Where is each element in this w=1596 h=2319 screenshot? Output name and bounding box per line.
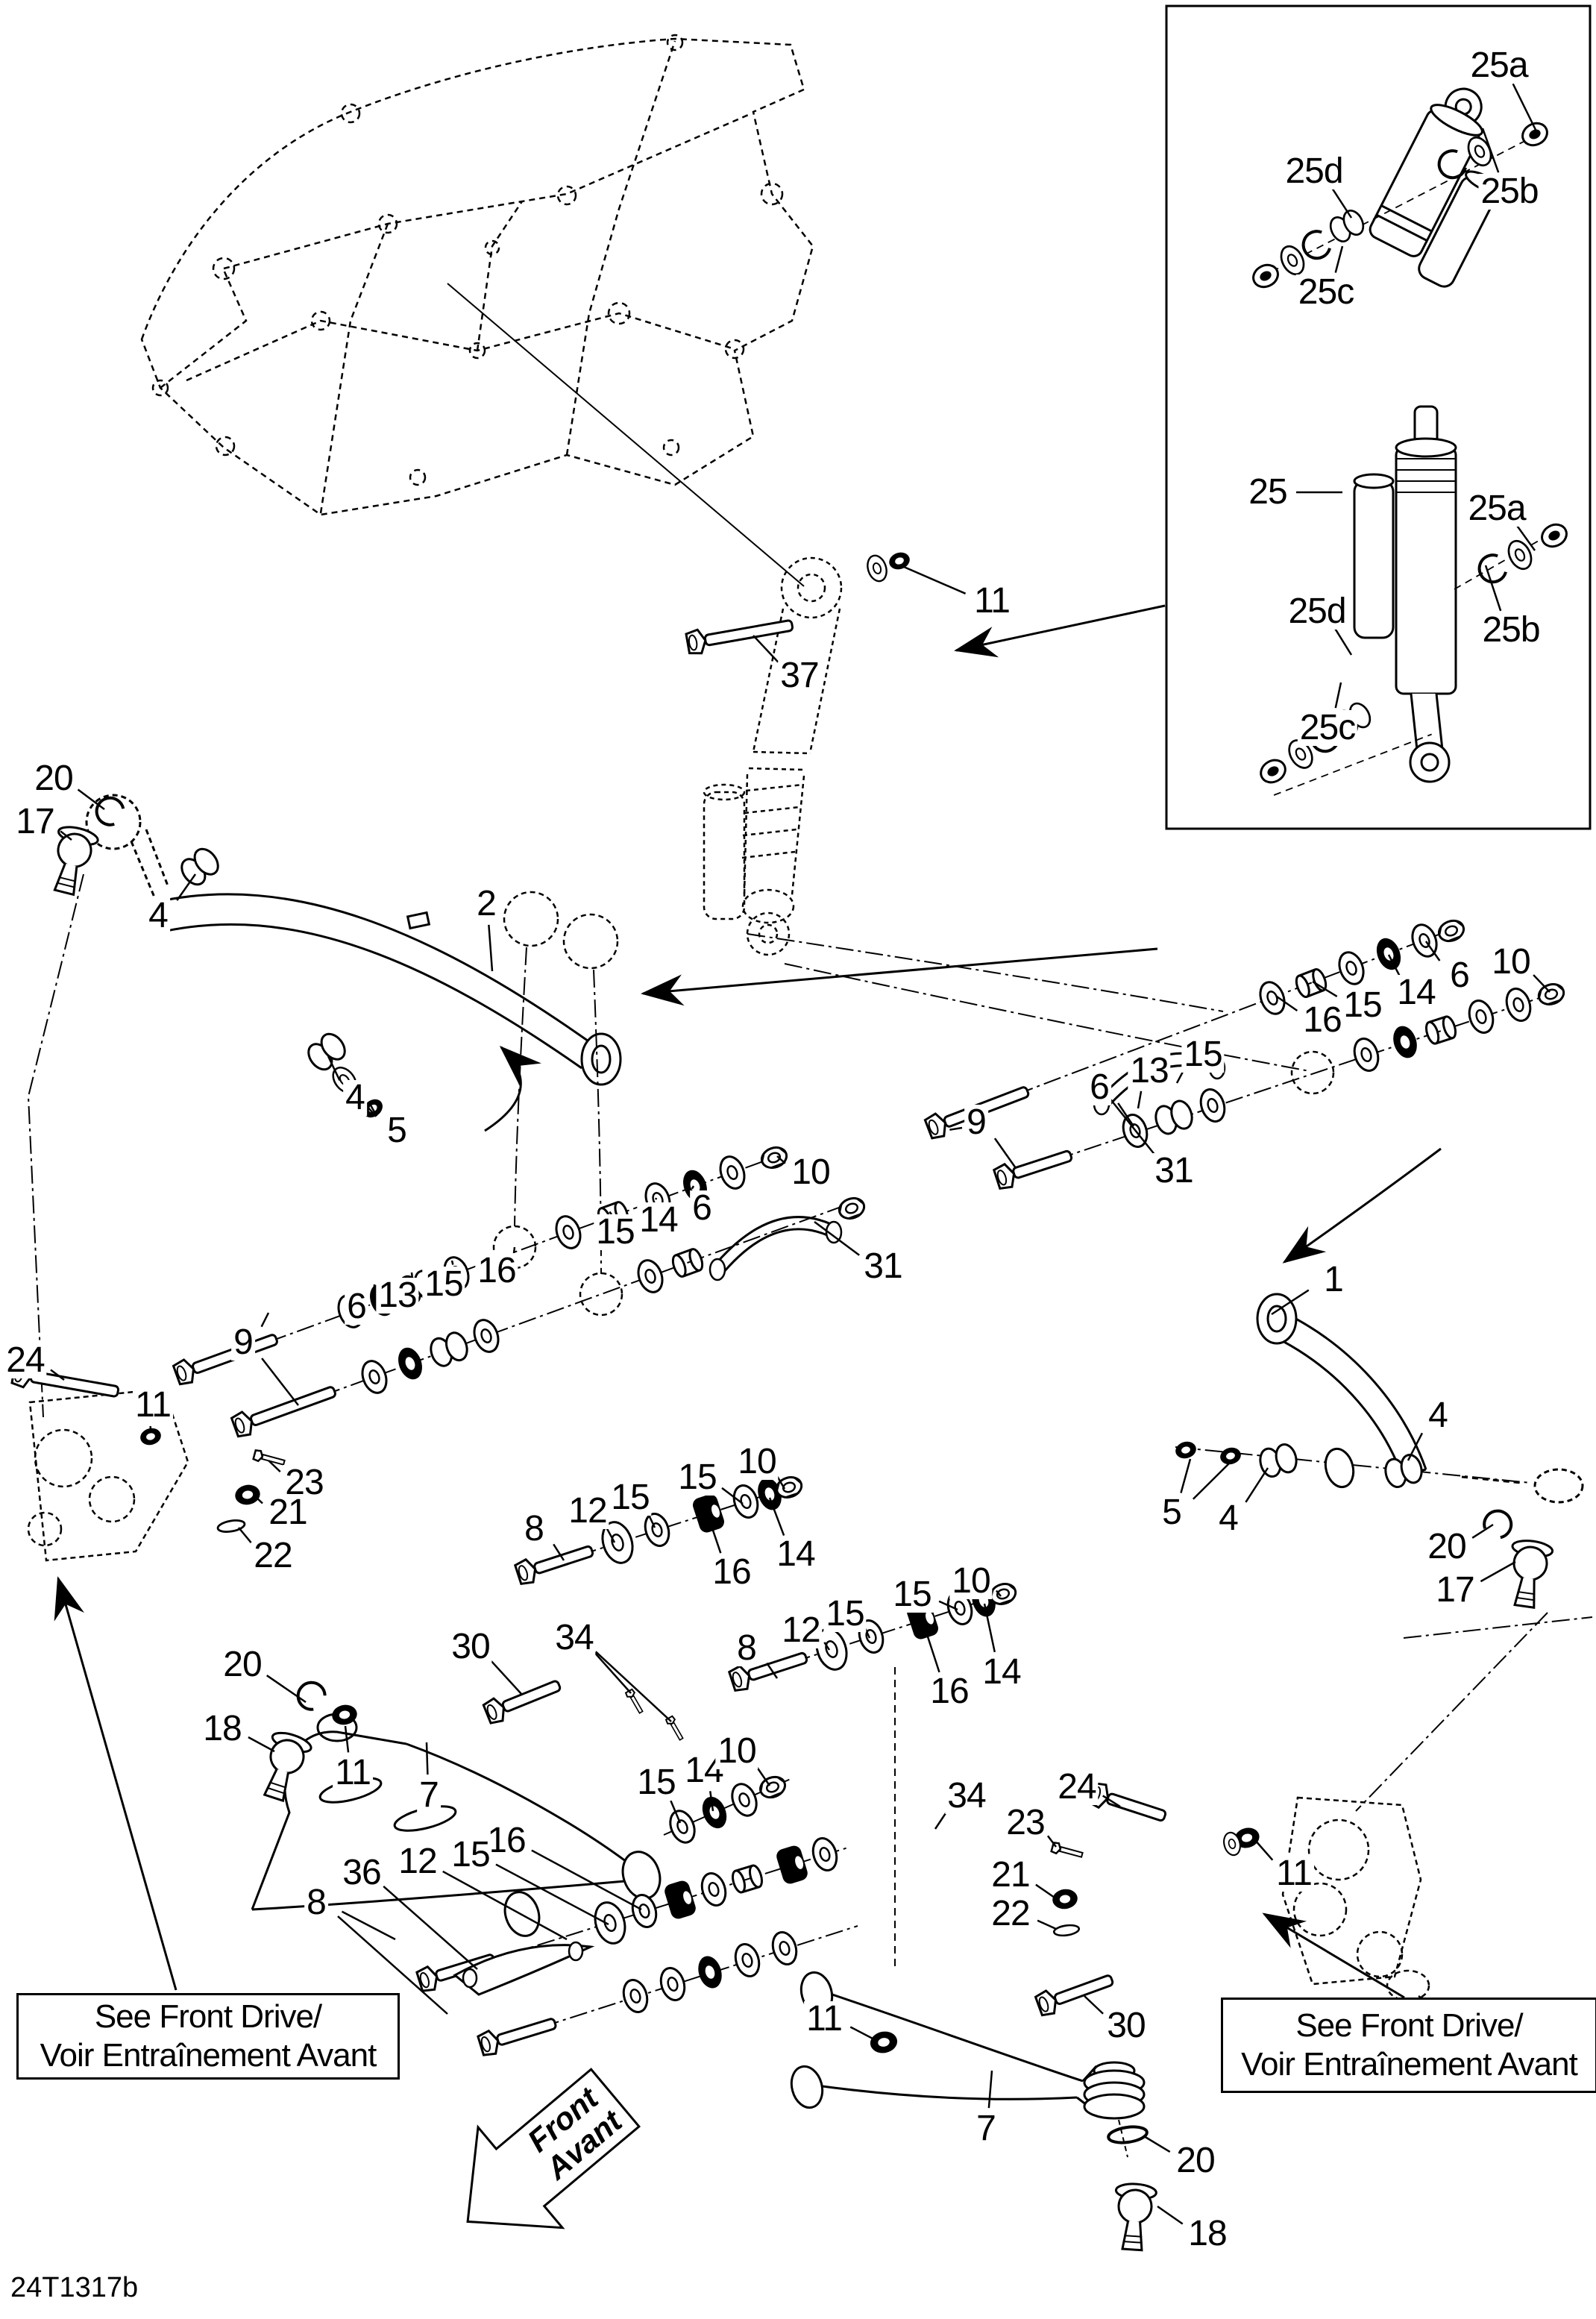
leader-line xyxy=(767,1663,777,1678)
leader-line xyxy=(1335,628,1351,655)
leader-line xyxy=(1084,1996,1103,2014)
leader-line xyxy=(60,831,72,840)
note-box-right-line1: See Front Drive/ xyxy=(1295,2006,1522,2045)
leader-line xyxy=(865,1628,870,1638)
leader-line xyxy=(262,1313,268,1327)
leader-line xyxy=(342,1912,395,1939)
leader-line xyxy=(1336,246,1342,273)
note-box-left-line2: Voir Entraînement Avant xyxy=(40,2036,377,2075)
leader-line xyxy=(996,1591,1001,1596)
leader-line xyxy=(488,925,492,971)
leader-line xyxy=(777,1477,785,1489)
leader-line xyxy=(268,1460,280,1472)
leader-line xyxy=(1513,84,1538,134)
leader-line xyxy=(177,874,195,900)
leader-line xyxy=(383,1886,477,1969)
callout-leader-layer xyxy=(0,0,1596,2319)
leader-line xyxy=(1426,941,1439,961)
leader-line xyxy=(496,1865,609,1924)
leader-line xyxy=(255,1496,263,1503)
note-box-right: See Front Drive/ Voir Entraînement Avant xyxy=(1221,1998,1596,2093)
leader-line xyxy=(1486,565,1501,611)
leader-line xyxy=(1480,1562,1515,1581)
leader-line xyxy=(267,1675,306,1702)
leader-line xyxy=(923,1623,939,1672)
note-box-left: See Front Drive/ Voir Entraînement Avant xyxy=(16,1993,400,2080)
leader-line xyxy=(1048,1836,1056,1847)
leader-line xyxy=(553,1544,564,1560)
leader-line xyxy=(1408,1433,1422,1460)
leader-line xyxy=(532,1851,641,1910)
leader-line xyxy=(939,1601,958,1610)
leader-line xyxy=(824,1642,829,1650)
leader-line xyxy=(1533,975,1550,992)
leader-line xyxy=(753,636,778,662)
leader-line xyxy=(935,1811,947,1829)
leader-line xyxy=(1254,1839,1272,1860)
leader-line xyxy=(1313,982,1337,997)
leader-line xyxy=(814,1222,859,1255)
leader-line xyxy=(51,1370,64,1380)
leader-line xyxy=(648,1514,655,1528)
leader-line xyxy=(770,1498,784,1536)
leader-line xyxy=(1037,1921,1056,1929)
leader-line xyxy=(1272,1290,1309,1314)
leader-line xyxy=(850,2027,874,2039)
leader-line xyxy=(248,1737,274,1751)
leader-line xyxy=(1138,1091,1141,1108)
leader-line xyxy=(984,1604,995,1652)
leader-line xyxy=(1118,1103,1134,1126)
leader-line xyxy=(1336,682,1341,708)
leader-line xyxy=(1245,1468,1268,1502)
leader-line xyxy=(1277,997,1297,1011)
leader-line xyxy=(606,1527,615,1543)
leader-line xyxy=(670,1801,680,1823)
leader-line xyxy=(692,1186,694,1189)
leader-line xyxy=(348,1085,376,1117)
leader-line xyxy=(989,2071,992,2108)
leader-line xyxy=(1036,1885,1055,1898)
leader-line xyxy=(239,1528,251,1543)
leader-line xyxy=(443,1871,567,1939)
leader-line xyxy=(1181,1459,1190,1493)
leader-line xyxy=(756,1766,770,1786)
leader-line xyxy=(596,1651,671,1722)
leader-line xyxy=(427,1742,427,1774)
leader-line xyxy=(345,1726,348,1752)
leader-line xyxy=(594,1653,631,1693)
note-box-right-line2: Voir Entraînement Avant xyxy=(1241,2045,1577,2084)
leader-line xyxy=(1144,2136,1170,2152)
leader-line xyxy=(777,1156,785,1164)
leader-line xyxy=(412,1273,412,1278)
leader-line xyxy=(1157,2206,1183,2224)
leader-line xyxy=(1102,1089,1155,1155)
leader-line xyxy=(1103,1795,1120,1807)
leader-line xyxy=(722,1488,743,1504)
leader-line xyxy=(328,1056,339,1080)
leader-line xyxy=(1516,524,1535,550)
leader-line xyxy=(1332,188,1351,218)
leader-line xyxy=(491,1661,522,1695)
leader-line xyxy=(78,789,104,809)
diagram-code: 24T1317b xyxy=(10,2272,138,2304)
leader-line xyxy=(1389,955,1400,976)
leader-line xyxy=(1483,128,1498,172)
leader-line xyxy=(1193,1463,1229,1499)
leader-line xyxy=(452,1261,453,1265)
leader-line xyxy=(904,567,966,594)
leader-line xyxy=(262,1358,298,1405)
leader-line xyxy=(656,1198,656,1199)
note-box-left-line1: See Front Drive/ xyxy=(95,1998,321,2036)
leader-line xyxy=(1177,1070,1184,1083)
leader-line xyxy=(609,1212,612,1214)
diagram-stage: 25a25b25d25c2525a25b25d25c37112017424510… xyxy=(0,0,1596,2319)
leader-line xyxy=(710,1791,713,1811)
leader-line xyxy=(709,1517,720,1553)
leader-line xyxy=(1472,1525,1493,1538)
leader-line xyxy=(514,1247,515,1255)
leader-line xyxy=(995,1138,1016,1168)
leader-line xyxy=(949,1128,962,1130)
